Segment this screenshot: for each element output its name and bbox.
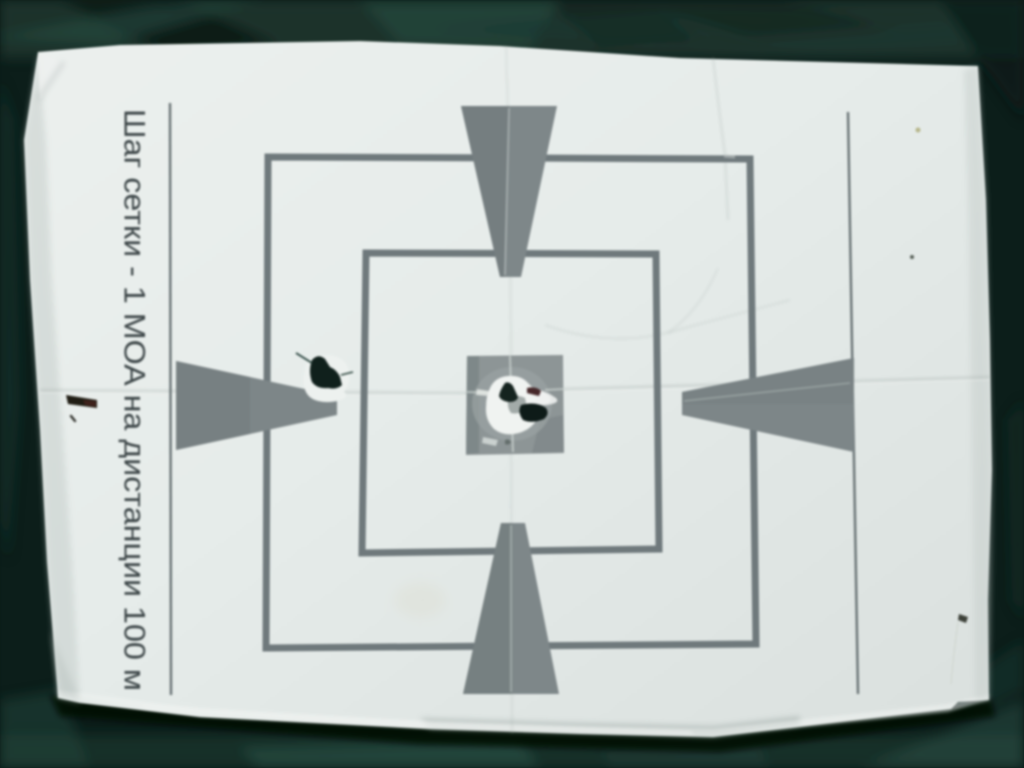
svg-text:Шаг сетки - 1 МОА на дистанции: Шаг сетки - 1 МОА на дистанции 100 м xyxy=(118,109,151,691)
